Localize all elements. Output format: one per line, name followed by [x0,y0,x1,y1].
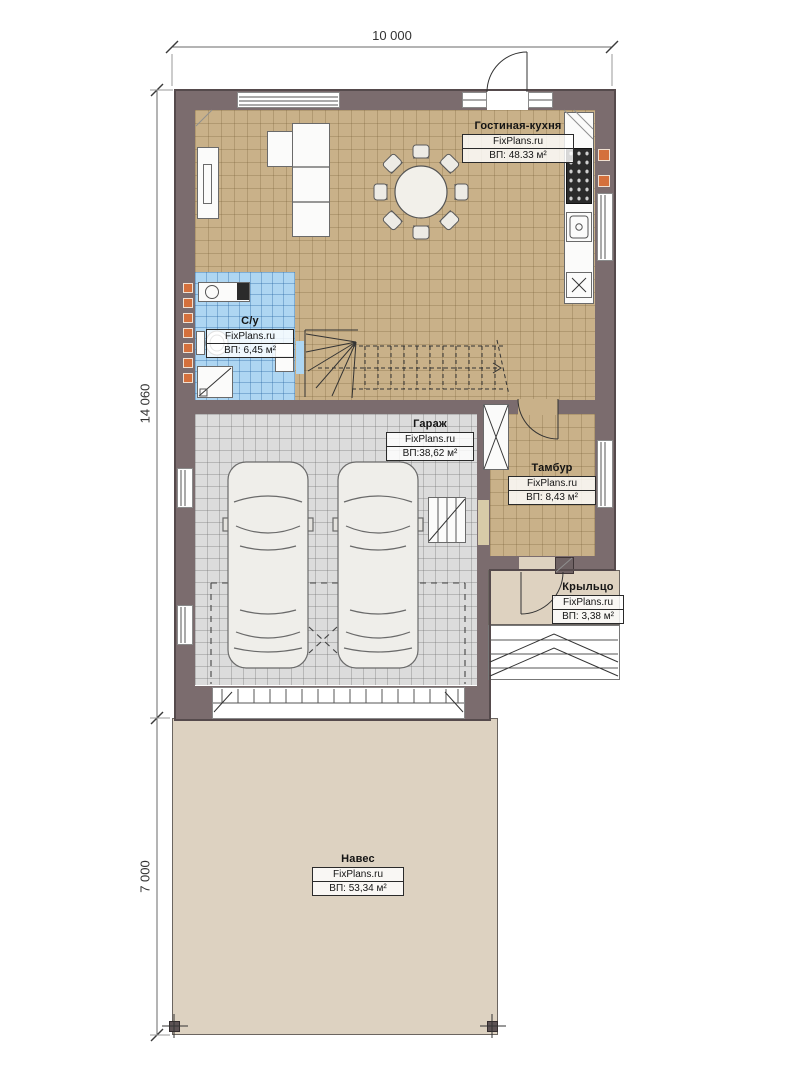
wall-accent-7 [183,373,193,383]
window-left-garage-1 [177,468,193,508]
sofa-body [292,123,330,237]
label-porch: Крыльцо FixPlans.ru ВП: 3,38 м² [552,581,624,624]
room-info-box: FixPlans.ru ВП: 48.33 м² [462,134,574,163]
area-text: ВП: 53,34 м² [313,882,403,895]
area-text: ВП: 8,43 м² [509,491,595,504]
kitchen-appliance [566,272,592,298]
wall-accent-5 [183,343,193,353]
shower [197,366,233,398]
room-name: Гостиная-кухня [462,120,574,132]
canopy-post-left [169,1021,180,1032]
label-tambour: Тамбур FixPlans.ru ВП: 8,43 м² [508,462,596,505]
dimension-left-main: 14 060 [138,369,153,439]
vanity-cabinet [237,283,249,300]
area-text: ВП:38,62 м² [387,447,473,460]
toilet-tank [196,331,205,355]
garage-door [212,687,465,719]
entrance-door-opening [487,90,528,110]
porch-pillar [555,557,574,574]
label-bathroom: С/у FixPlans.ru ВП: 6,45 м² [206,315,294,358]
window-top-sidelite-left [462,92,487,108]
label-garage: Гараж FixPlans.ru ВП:38,62 м² [386,418,474,461]
wall-accent-2 [183,298,193,308]
brand-text: FixPlans.ru [387,433,473,447]
window-top-living [237,92,340,108]
window-right-tambour [597,440,613,508]
window-top-sidelite-right [528,92,553,108]
brand-text: FixPlans.ru [207,330,293,344]
area-text: ВП: 48.33 м² [463,149,573,162]
brand-text: FixPlans.ru [463,135,573,149]
room-info-box: FixPlans.ru ВП: 8,43 м² [508,476,596,505]
room-name: Крыльцо [552,581,624,593]
wall-accent-3 [183,313,193,323]
bathroom-door-opening [296,341,304,374]
garage-side-door-opening [478,500,489,545]
room-name: С/у [206,315,294,327]
room-name: Тамбур [508,462,596,474]
room-name: Гараж [386,418,474,430]
room-name: Навес [312,853,404,865]
wall-accent-6 [183,358,193,368]
canopy-post-right [487,1021,498,1032]
brand-text: FixPlans.ru [509,477,595,491]
dimension-top: 10 000 [352,28,432,43]
tv-screen [203,164,212,204]
room-info-box: FixPlans.ru ВП: 3,38 м² [552,595,624,624]
porch-steps [488,625,620,680]
wall-accent-4 [183,328,193,338]
wall-accent-8 [598,149,610,161]
brand-text: FixPlans.ru [313,868,403,882]
window-right-kitchen [597,193,613,261]
floor-plan: 10 000 14 060 7 000 Гостиная-кухня FixPl… [0,0,792,1080]
window-left-garage-2 [177,605,193,645]
brand-text: FixPlans.ru [553,596,623,610]
wall-accent-1 [183,283,193,293]
room-info-box: FixPlans.ru ВП:38,62 м² [386,432,474,461]
label-canopy: Навес FixPlans.ru ВП: 53,34 м² [312,853,404,896]
room-info-box: FixPlans.ru ВП: 6,45 м² [206,329,294,358]
room-info-box: FixPlans.ru ВП: 53,34 м² [312,867,404,896]
area-text: ВП: 3,38 м² [553,610,623,623]
vent-shaft [483,404,509,470]
label-living-kitchen: Гостиная-кухня FixPlans.ru ВП: 48.33 м² [462,120,574,163]
area-text: ВП: 6,45 м² [207,344,293,357]
wall-accent-9 [598,175,610,187]
kitchen-sink [566,212,592,242]
tambour-door-opening [518,399,558,415]
garage-steps [428,497,466,543]
dimension-left-canopy: 7 000 [138,842,153,912]
